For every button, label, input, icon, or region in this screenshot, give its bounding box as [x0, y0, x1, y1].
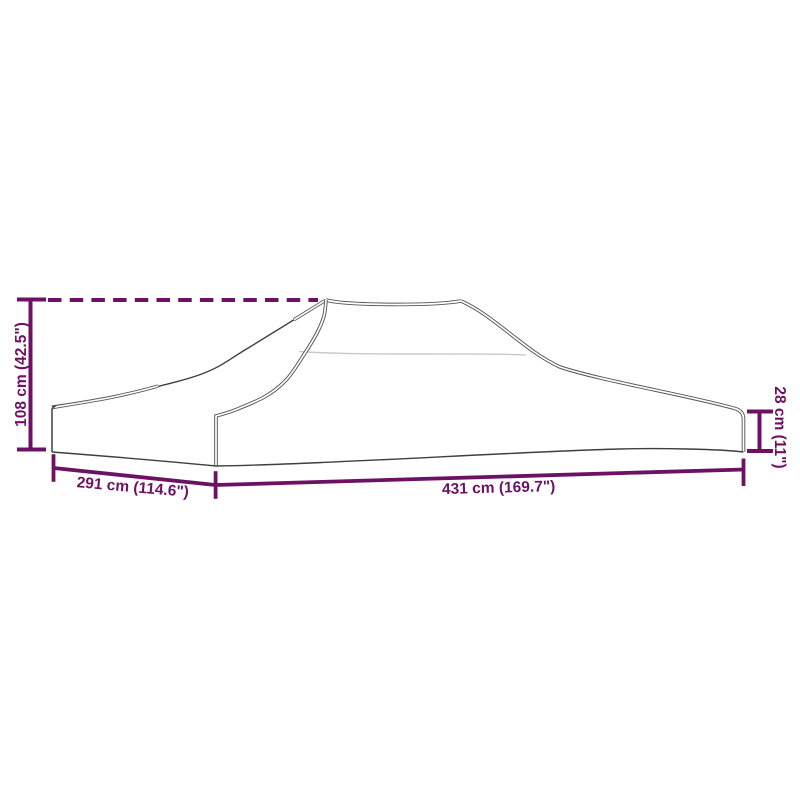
svg-text:28 cm (11"): 28 cm (11"): [771, 386, 788, 468]
svg-text:291 cm (114.6"): 291 cm (114.6"): [76, 474, 190, 501]
svg-text:108 cm (42.5"): 108 cm (42.5"): [13, 322, 30, 427]
svg-text:431 cm (169.7"): 431 cm (169.7"): [442, 478, 556, 498]
